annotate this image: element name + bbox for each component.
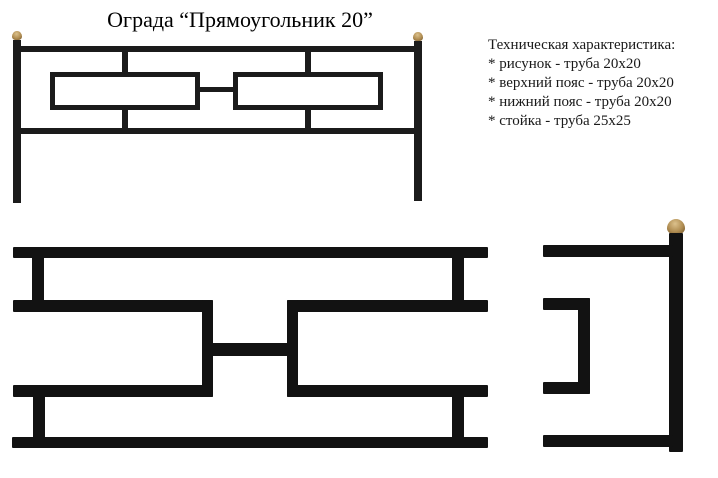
- finial-ball-left: [12, 31, 22, 40]
- finial-ball: [667, 219, 685, 234]
- technical-specs: Техническая характеристика: * рисунок - …: [488, 36, 675, 131]
- finial-ball-right: [413, 32, 423, 41]
- stub-top-right: [305, 50, 311, 74]
- center-connector: [208, 343, 292, 356]
- left-rectangle: [50, 72, 200, 110]
- stub-top-left: [122, 50, 128, 74]
- corner-post-photo: [540, 216, 698, 458]
- stub-bottom-left: [122, 108, 128, 130]
- rectangle-end-cap: [578, 298, 590, 394]
- stub-bottom-right: [452, 396, 464, 438]
- upper-belt-left: [13, 300, 213, 312]
- bottom-rail: [12, 437, 488, 448]
- rectangle-bottom-edge: [543, 382, 590, 394]
- top-rail: [13, 247, 488, 258]
- top-rail: [15, 46, 422, 52]
- top-rail: [543, 245, 673, 257]
- upper-belt-right: [287, 300, 488, 312]
- pattern-closeup-photo: [10, 243, 490, 451]
- spec-item-post: * стойка - труба 25х25: [488, 112, 675, 131]
- right-rectangle: [233, 72, 383, 110]
- stub-bottom-right: [305, 108, 311, 130]
- spec-item-top-belt: * верхний пояс - труба 20х20: [488, 74, 675, 93]
- left-post: [13, 40, 21, 203]
- corner-post: [669, 233, 683, 452]
- spec-item-bottom-belt: * нижний пояс - труба 20х20: [488, 93, 675, 112]
- specs-heading: Техническая характеристика:: [488, 36, 675, 55]
- right-post: [414, 41, 422, 201]
- stub-top-left: [32, 257, 44, 301]
- stub-bottom-left: [33, 396, 45, 438]
- catalog-page: Ограда “Прямоугольник 20” Техническая ха…: [0, 0, 718, 478]
- center-connector: [197, 87, 236, 92]
- spec-item-pattern: * рисунок - труба 20х20: [488, 55, 675, 74]
- bottom-rail: [15, 128, 422, 134]
- bottom-rail: [543, 435, 673, 447]
- fence-drawing: [10, 30, 430, 205]
- stub-top-right: [452, 257, 464, 301]
